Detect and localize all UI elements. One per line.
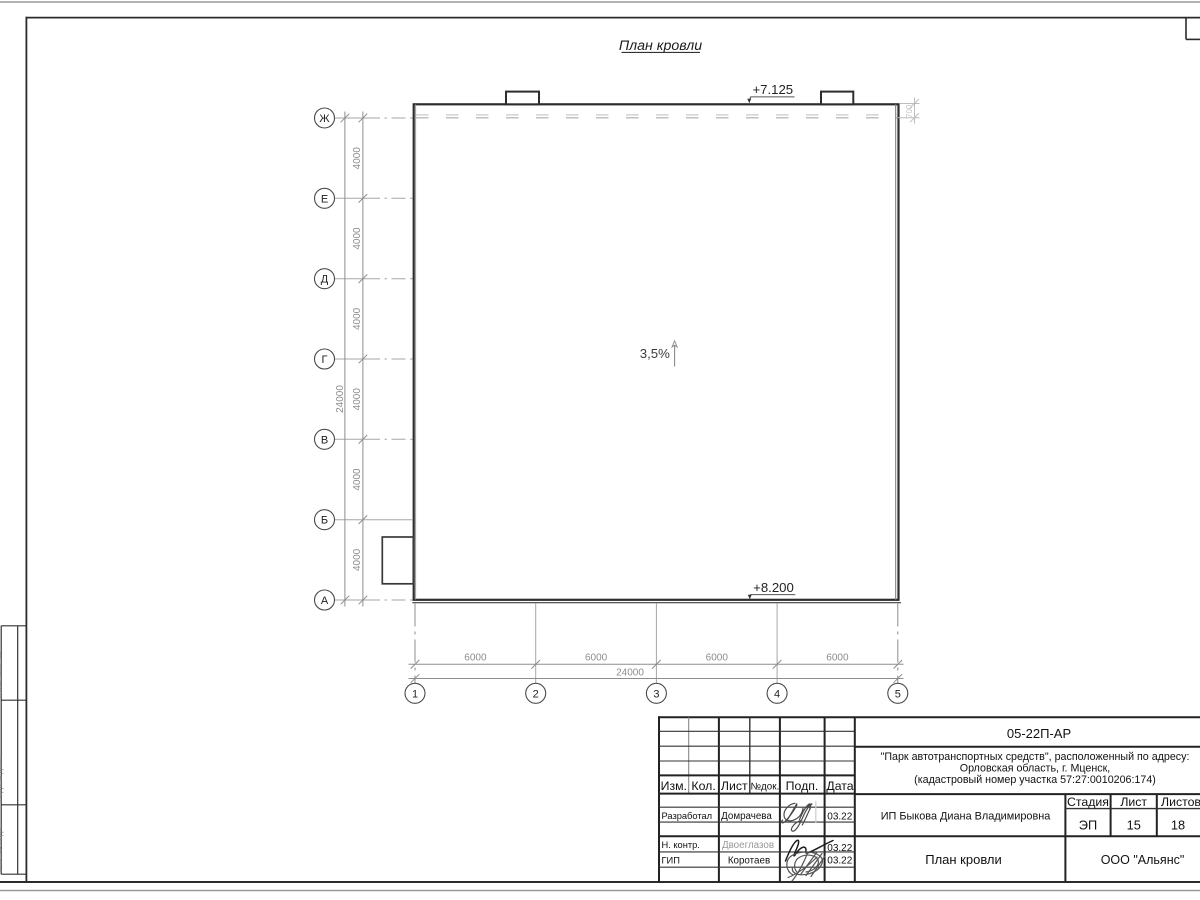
svg-text:Взам. инв. №: Взам. инв. № — [0, 652, 4, 698]
svg-text:05-22П-АР: 05-22П-АР — [1007, 726, 1071, 741]
svg-text:+8.200: +8.200 — [753, 580, 794, 595]
svg-text:Подп.: Подп. — [786, 779, 819, 793]
svg-text:4000: 4000 — [352, 548, 363, 571]
svg-text:Инв. № подл.: Инв. № подл. — [0, 825, 4, 872]
svg-text:6000: 6000 — [464, 653, 487, 664]
svg-text:Разработал: Разработал — [662, 811, 713, 821]
svg-text:План кровли: План кровли — [925, 852, 1002, 867]
svg-text:ИП Быкова Диана Владимировна: ИП Быкова Диана Владимировна — [881, 811, 1052, 823]
svg-text:+7.125: +7.125 — [752, 82, 793, 97]
svg-text:А: А — [321, 595, 329, 607]
svg-text:Кол.: Кол. — [691, 779, 715, 793]
svg-text:4000: 4000 — [352, 227, 363, 250]
svg-text:Коротаев: Коротаев — [728, 855, 770, 866]
svg-text:24000: 24000 — [616, 667, 644, 678]
svg-text:Лист: Лист — [1120, 795, 1147, 809]
svg-text:ООО "Альянс": ООО "Альянс" — [1101, 853, 1185, 867]
svg-text:Дата: Дата — [826, 779, 853, 793]
svg-text:Изм.: Изм. — [661, 779, 687, 793]
svg-text:Стадия: Стадия — [1067, 795, 1109, 809]
svg-text:ГИП: ГИП — [662, 855, 680, 865]
svg-text:2: 2 — [533, 688, 539, 700]
svg-text:15: 15 — [1127, 818, 1141, 833]
svg-text:Лист: Лист — [721, 779, 748, 793]
svg-text:5: 5 — [895, 688, 901, 700]
svg-text:4: 4 — [774, 688, 780, 700]
svg-text:6000: 6000 — [706, 653, 729, 664]
svg-text:03.22: 03.22 — [827, 812, 852, 823]
svg-text:6000: 6000 — [585, 653, 608, 664]
svg-text:Двоеглазов: Двоеглазов — [722, 840, 774, 851]
svg-text:03.22: 03.22 — [827, 856, 852, 867]
svg-text:3: 3 — [653, 688, 659, 700]
svg-text:4000: 4000 — [352, 468, 363, 491]
svg-text:03.22: 03.22 — [827, 843, 852, 854]
svg-text:Н. контр.: Н. контр. — [662, 840, 700, 850]
svg-text:В: В — [321, 434, 328, 446]
svg-text:Орловская область, г. Мценск,: Орловская область, г. Мценск, — [960, 763, 1111, 775]
svg-text:(кадастровый номер участка 57:: (кадастровый номер участка 57:27:0010206… — [914, 774, 1156, 786]
svg-text:1: 1 — [412, 688, 418, 700]
svg-text:Ж: Ж — [319, 113, 329, 125]
svg-text:Подп. и дата: Подп. и дата — [0, 757, 4, 802]
svg-text:План кровли: План кровли — [619, 38, 702, 54]
svg-text:700: 700 — [905, 104, 914, 118]
svg-text:18: 18 — [1171, 818, 1185, 833]
svg-text:№док.: №док. — [751, 781, 780, 792]
svg-text:24000: 24000 — [335, 385, 346, 413]
svg-text:4000: 4000 — [352, 388, 363, 411]
svg-text:ЭП: ЭП — [1079, 818, 1097, 833]
svg-text:4000: 4000 — [352, 147, 363, 170]
svg-text:4000: 4000 — [352, 307, 363, 330]
svg-text:6000: 6000 — [826, 653, 849, 664]
svg-text:Листов: Листов — [1161, 795, 1200, 809]
svg-text:"Парк автотранспортных средств: "Парк автотранспортных средств", располо… — [881, 751, 1190, 763]
svg-text:Б: Б — [321, 515, 328, 527]
svg-text:Е: Е — [321, 193, 328, 205]
svg-text:Домрачева: Домрачева — [721, 811, 772, 822]
svg-text:3,5%: 3,5% — [640, 346, 670, 361]
svg-text:Г: Г — [322, 354, 328, 366]
svg-text:Д: Д — [321, 274, 329, 286]
